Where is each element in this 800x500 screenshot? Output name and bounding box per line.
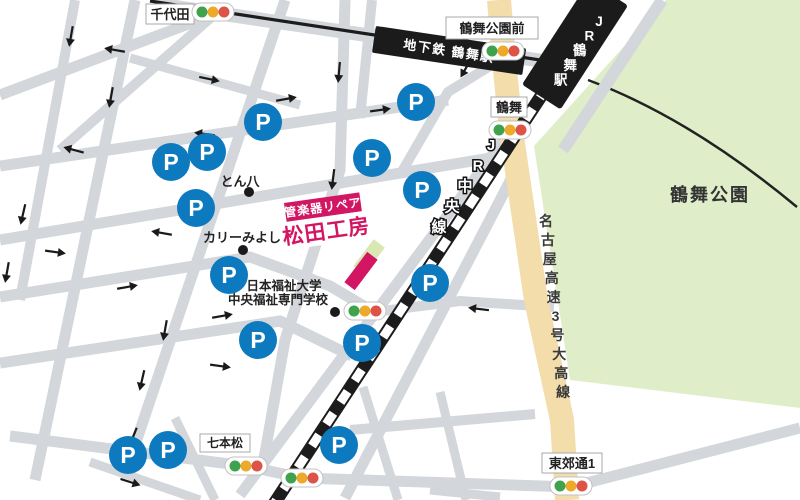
parking-icon: P xyxy=(403,171,441,209)
one-way-arrow-icon xyxy=(211,310,233,323)
svg-text:P: P xyxy=(364,145,379,171)
traffic-signal-icon xyxy=(482,42,524,60)
access-map: 鶴舞公園 地下鉄 鶴舞駅 xyxy=(0,0,800,500)
label-tsurumai-koen-mae: 鶴舞公園前 xyxy=(446,17,538,39)
traffic-signal-icon xyxy=(192,3,234,21)
jr-station-label: 舞 xyxy=(563,57,577,73)
poi-dot xyxy=(330,307,340,317)
label-chiyoda: 千代田 xyxy=(146,4,194,24)
poi-fukushi-univ: 日本福祉大学 xyxy=(246,278,322,293)
jr-station-label: 駅 xyxy=(554,72,568,87)
expressway-label: 名 xyxy=(539,213,553,229)
expressway-label: 線 xyxy=(556,384,570,400)
parking-icon: P xyxy=(177,189,215,227)
expressway-label: 3 xyxy=(552,308,560,324)
label-shichihonmatsu: 七本松 xyxy=(200,434,250,452)
svg-text:P: P xyxy=(199,139,214,165)
parking-icon: P xyxy=(152,143,190,181)
svg-text:P: P xyxy=(160,437,175,463)
traffic-signal-icon xyxy=(225,457,267,475)
traffic-signal-icon xyxy=(344,302,386,320)
parking-icon: P xyxy=(109,436,147,474)
svg-text:P: P xyxy=(188,195,203,221)
park-label: 鶴舞公園 xyxy=(670,184,750,205)
poi-fukushi-college: 中央福祉専門学校 xyxy=(228,292,329,307)
map-canvas: 鶴舞公園 地下鉄 鶴舞駅 xyxy=(0,0,800,500)
one-way-arrow-icon xyxy=(16,203,29,225)
expressway-label: 高 xyxy=(554,365,568,381)
one-way-arrow-icon xyxy=(150,227,172,240)
svg-text:P: P xyxy=(250,327,265,353)
expressway-label: 速 xyxy=(547,289,561,305)
poi-dot xyxy=(238,245,248,255)
svg-text:東郊通1: 東郊通1 xyxy=(549,456,595,471)
expressway-label: 大 xyxy=(552,346,566,362)
jr-station-label: J xyxy=(595,14,603,29)
svg-text:P: P xyxy=(255,109,270,135)
traffic-signal-icon xyxy=(489,121,531,139)
poi-tonpachi: とん八 xyxy=(220,174,260,189)
parking-icon: P xyxy=(239,321,277,359)
expressway-label: 号 xyxy=(550,327,564,343)
one-way-arrow-icon xyxy=(44,246,66,258)
parking-icon: P xyxy=(397,83,435,121)
svg-text:P: P xyxy=(354,330,369,356)
one-way-arrow-icon xyxy=(209,360,231,372)
svg-text:P: P xyxy=(331,432,346,458)
svg-text:鶴舞公園前: 鶴舞公園前 xyxy=(459,21,524,36)
jr-station-label: 鶴 xyxy=(573,42,587,58)
svg-text:千代田: 千代田 xyxy=(150,7,189,22)
svg-text:P: P xyxy=(408,89,423,115)
jr-line-label: J xyxy=(487,137,495,154)
shop-callout: 管楽器リペア 松田工房 xyxy=(278,192,374,266)
traffic-signal-icon xyxy=(550,477,592,495)
svg-text:P: P xyxy=(120,442,135,468)
svg-text:P: P xyxy=(422,270,437,296)
expressway-label: 高 xyxy=(545,270,559,286)
svg-text:鶴舞: 鶴舞 xyxy=(496,100,522,115)
label-tsurumai: 鶴舞 xyxy=(491,97,527,117)
one-way-arrow-icon xyxy=(1,261,14,283)
parking-icon: P xyxy=(210,256,248,294)
parking-icon: P xyxy=(353,139,391,177)
jr-line-label: 中 xyxy=(457,177,472,195)
jr-line-label: 線 xyxy=(431,218,446,236)
parking-icon: P xyxy=(188,133,226,171)
parking-icon: P xyxy=(320,426,358,464)
parking-icon: P xyxy=(149,431,187,469)
expressway-label: 古 xyxy=(541,232,555,248)
jr-station-label: R xyxy=(585,29,595,44)
parking-icon: P xyxy=(411,264,449,302)
expressway-label: 屋 xyxy=(543,251,557,267)
one-way-arrow-icon xyxy=(135,369,148,391)
traffic-signal-icon xyxy=(281,469,323,487)
jr-line-label: 央 xyxy=(444,198,460,216)
parking-icon: P xyxy=(244,103,282,141)
parking-icon: P xyxy=(343,324,381,362)
svg-text:P: P xyxy=(414,177,429,203)
jr-line-label: R xyxy=(473,158,484,175)
poi-curry-miyoshi: カリーみよし xyxy=(203,230,281,245)
svg-text:P: P xyxy=(163,149,178,175)
label-tokodori-1: 東郊通1 xyxy=(542,453,602,473)
poi-dot xyxy=(244,187,254,197)
svg-text:P: P xyxy=(221,262,236,288)
svg-text:七本松: 七本松 xyxy=(207,435,243,450)
